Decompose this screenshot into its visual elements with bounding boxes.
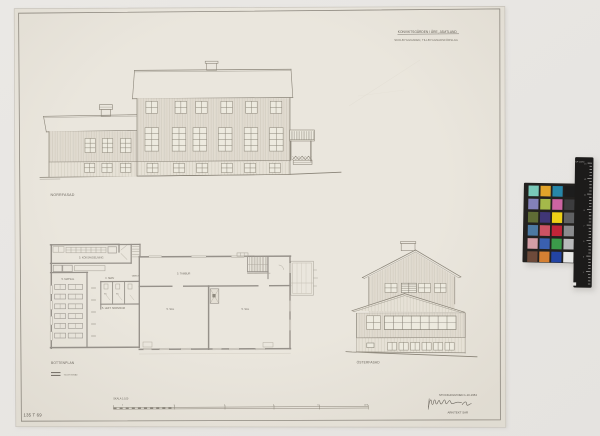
svg-text:13: 13 [584, 179, 586, 181]
svg-text:1: 1 [173, 404, 174, 406]
svg-text:5: 5 [583, 241, 584, 243]
svg-text:5. LEKT. SKRIVRUM: 5. LEKT. SKRIVRUM [102, 307, 125, 310]
svg-text:10: 10 [317, 404, 319, 406]
svg-text:SKOLBYGGNADEN, TILLBYGGNADSFÖR: SKOLBYGGNADEN, TILLBYGGNADSFÖRSLAG [394, 38, 458, 42]
svg-text:NORRFASAD: NORRFASAD [51, 193, 75, 197]
svg-text:9: 9 [584, 210, 585, 212]
svg-text:1: 1 [583, 272, 584, 274]
svg-text:135 T 69: 135 T 69 [24, 413, 43, 418]
svg-text:3: 3 [583, 257, 584, 259]
svg-text:F. SERV: F. SERV [106, 278, 115, 280]
svg-text:2: 2 [224, 404, 225, 406]
svg-text:15: 15 [584, 164, 586, 166]
svg-text:7: 7 [583, 226, 584, 228]
svg-text:KONVIKTSGÅRDEN I ÅRE, JÄMTLAND: KONVIKTSGÅRDEN I ÅRE, JÄMTLAND [398, 29, 458, 34]
svg-text:11: 11 [584, 195, 586, 197]
svg-text:0: 0 [122, 404, 123, 406]
svg-text:BOTTENPLAN: BOTTENPLAN [51, 361, 75, 365]
svg-text:ARKITEKT SAR: ARKITEKT SAR [448, 410, 469, 414]
svg-text:14 M: 14 M [364, 404, 369, 406]
svg-text:STOCKHOLM DEN 1-10-1954: STOCKHOLM DEN 1-10-1954 [439, 393, 477, 397]
svg-text:ÖSTERFASAD: ÖSTERFASAD [357, 361, 381, 365]
